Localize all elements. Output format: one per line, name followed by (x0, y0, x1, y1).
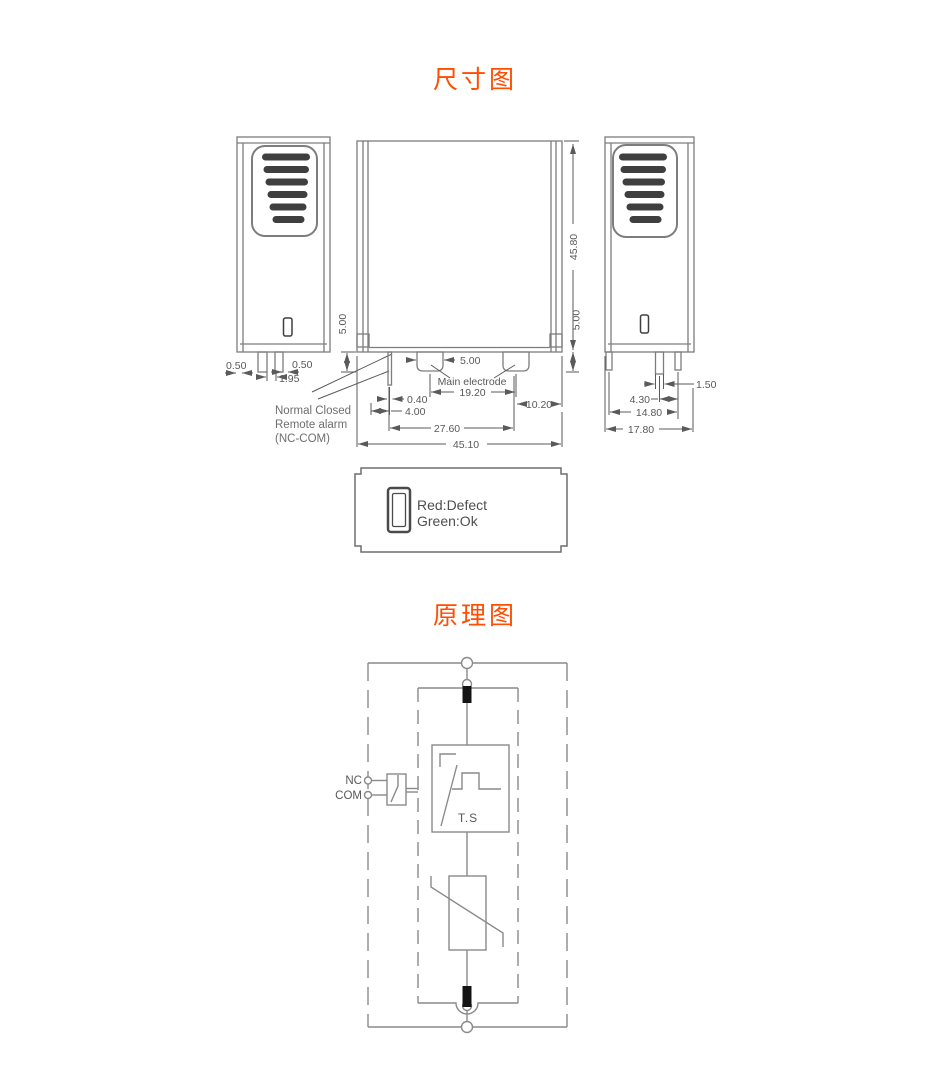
left-view-pin (275, 352, 283, 372)
dim-pin-length-left: 5.00 (337, 314, 349, 335)
top-view: Red:Defect Green:Ok (355, 468, 567, 552)
led-status-red: Red:Defect (417, 497, 487, 513)
dim-electrode-width: 5.00 (460, 355, 481, 367)
right-side-view (605, 137, 694, 374)
dim-pin-offset: 4.30 (630, 394, 651, 406)
dim-pin-span: 14.80 (636, 407, 662, 419)
pulse-symbol (452, 773, 501, 789)
note-leader-line (318, 371, 389, 399)
top-view-led-window-outer (388, 488, 410, 532)
nc-terminal (365, 777, 372, 784)
dim-signal-pin-offset: 4.00 (405, 406, 426, 418)
varistor-box (449, 876, 486, 950)
disconnector-lever (441, 765, 457, 826)
dim-electrode-span: 27.60 (434, 423, 460, 435)
remote-alarm-note-line2: Remote alarm (275, 419, 347, 431)
right-view-vent-slots (619, 154, 667, 224)
right-view-dimensions: 1.50 4.30 14.80 17.80 (605, 356, 717, 436)
remote-alarm-note-line3: (NC-COM) (275, 433, 330, 445)
technical-drawing-svg: 0.50 1.95 0.50 Normal Closed Remote alar… (0, 0, 950, 1068)
com-terminal (365, 792, 372, 799)
line-terminal-top (462, 658, 473, 669)
right-view-led-window (641, 315, 649, 333)
dim-right-offset: 10.20 (526, 399, 552, 411)
front-view-signal-pin (388, 352, 392, 385)
dim-pin-gap: 1.95 (279, 373, 300, 385)
varistor-symbol (431, 876, 503, 947)
dim-pin-width: 1.50 (696, 379, 717, 391)
technical-drawing-page: 尺寸图 原理图 (0, 0, 950, 1068)
thermal-switch-label: T.S (458, 811, 478, 825)
note-leader-line (312, 354, 392, 392)
left-view-pin (258, 352, 267, 372)
left-view-dimensions: 0.50 1.95 0.50 Normal Closed Remote alar… (225, 354, 392, 445)
dim-pin-right-offset: 0.50 (292, 359, 313, 371)
right-view-pin (675, 352, 681, 370)
terminal-com-label: COM (335, 790, 362, 802)
front-view-body (357, 141, 562, 352)
dim-signal-pin-width: 0.40 (407, 394, 428, 406)
dim-total-width: 45.10 (453, 439, 479, 451)
terminal-nc-label: NC (345, 775, 362, 787)
front-view-main-electrode-right (503, 352, 529, 371)
front-view-main-electrode-left (417, 352, 443, 371)
front-view (357, 141, 562, 385)
line-terminal-bottom (462, 1022, 473, 1033)
right-view-pin (606, 352, 612, 370)
left-view-led-window (284, 318, 293, 336)
dim-total-width-right: 17.80 (628, 424, 654, 436)
left-view-vent-slots (262, 154, 310, 224)
dim-pin-left-offset: 0.50 (226, 360, 247, 372)
dim-electrode-pitch: 19.20 (459, 387, 485, 399)
top-view-led-window-inner (393, 494, 406, 527)
schematic-circuit: T.S NC COM (335, 658, 567, 1033)
right-view-center-pin (656, 352, 664, 374)
led-status-green: Green:Ok (417, 513, 479, 529)
dim-height: 45.80 (568, 234, 580, 260)
remote-contact-switch (391, 775, 398, 802)
remote-alarm-note-line1: Normal Closed (275, 405, 351, 417)
left-side-view (237, 137, 330, 372)
top-electrode (463, 686, 472, 703)
bottom-electrode (463, 986, 472, 1007)
dim-pin-length-right: 5.00 (571, 310, 583, 331)
front-view-dimensions: 5.00 Main electrode 19.20 0.40 4.00 (337, 141, 583, 451)
